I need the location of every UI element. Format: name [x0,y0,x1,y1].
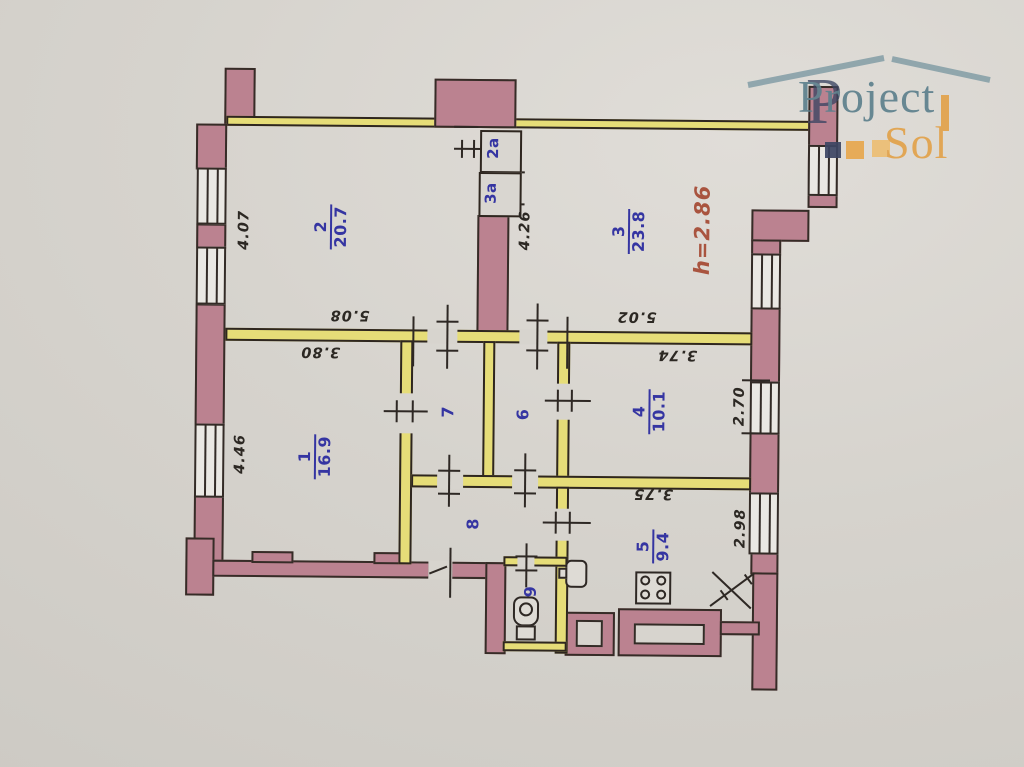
window-left-3 [194,424,225,498]
room-number: 4 [631,389,648,435]
room-number: 6 [513,408,532,420]
door-opening-kitchen [555,509,570,541]
dim-tick [742,379,770,381]
dim-4-46: 4.46 [232,434,248,474]
door-tick [514,492,536,494]
dim-tick [412,316,414,366]
dim-3-75: 3.75 [633,485,673,501]
door-tick [557,390,559,412]
door-tick [524,453,526,507]
room-label-7: 7 [440,406,457,418]
window-right-3 [748,492,779,554]
balcony-connector [720,621,760,635]
wall-right-pier-2 [749,432,780,495]
door-tick [438,493,460,495]
room-area: 16.9 [314,434,334,480]
balcony-block-long [618,608,722,657]
toilet-tank-icon [516,625,536,640]
door-tick [515,569,537,571]
room-number: 1 [297,434,314,480]
door-tick [448,455,450,507]
balcony-opening-long [634,623,705,645]
door-tick [396,400,398,422]
project-sol-logo: P Project Sol [0,0,1024,220]
door-tick [525,543,527,587]
room-area: 10.1 [648,389,668,435]
wall-bottom-right [450,562,488,579]
door-tick [446,305,449,369]
wall-bathroom-top [503,556,567,567]
room-label-4: 4 10.1 [631,389,668,435]
room-area: 9.4 [652,530,672,564]
wall-right-pier-1 [750,307,781,383]
balcony-block-left [565,612,615,656]
door-tick [436,321,458,323]
wall-room1-right [398,340,413,564]
dim-2-98: 2.98 [733,508,749,548]
wall-bottom-pilaster-1 [251,551,293,563]
door-tick [384,410,428,412]
logo-brand-bottom: Sol [884,116,1024,169]
balcony-opening-left [576,620,603,647]
window-right-1 [751,253,781,309]
dim-5-08: 5.08 [330,307,370,323]
room-label-1: 1 16.9 [297,434,334,480]
wall-room7-room6-divider [482,341,495,480]
wall-right-pier-3 [750,552,778,574]
door-tick [438,470,460,472]
floorplan-photo: 1 16.9 2 20.7 3 23.8 4 10.1 5 9.4 6 7 8 … [0,0,1024,767]
door-opening-room7-top [427,329,457,344]
sink-icon [565,560,587,588]
wall-left-pier-2 [195,304,226,426]
wall-bathroom-bottom [503,641,567,652]
window-right-2 [750,381,780,434]
room-label-9: 9 [523,586,540,598]
room-number: 7 [438,406,457,418]
dim-5-02: 5.02 [617,308,657,324]
door-tick [527,319,549,321]
door-opening-room6-top [519,329,547,344]
dim-tick [742,432,770,434]
door-tick [545,400,591,402]
door-tick [412,400,414,422]
door-tick [555,512,557,534]
dim-2-70: 2.70 [732,386,748,426]
room-label-5: 5 9.4 [635,529,672,563]
wall-left-foot [185,537,215,595]
room-number: 8 [463,518,482,530]
room-number: 5 [635,529,652,563]
door-tick [571,390,573,412]
dim-3-80: 3.80 [300,343,340,359]
room-number: 9 [521,586,540,598]
door-tick [569,512,571,534]
room-label-6: 6 [515,408,532,420]
door-tick [515,555,537,557]
dim-3-74: 3.74 [657,347,697,363]
window-left-2 [196,247,227,305]
toilet-icon [513,596,539,626]
sink-tap-icon [558,568,567,579]
logo-square-orange-1 [846,141,864,159]
wall-center [476,215,509,334]
door-tick [536,303,539,369]
door-tick [526,349,548,351]
room-label-8: 8 [465,518,482,530]
stove-icon [635,571,671,604]
door-tick [436,350,458,352]
logo-square-navy [825,142,841,158]
door-tick [514,469,536,471]
wall-left-pier-1 [196,224,226,249]
entrance-door-tick [449,548,451,598]
door-tick [543,522,591,524]
